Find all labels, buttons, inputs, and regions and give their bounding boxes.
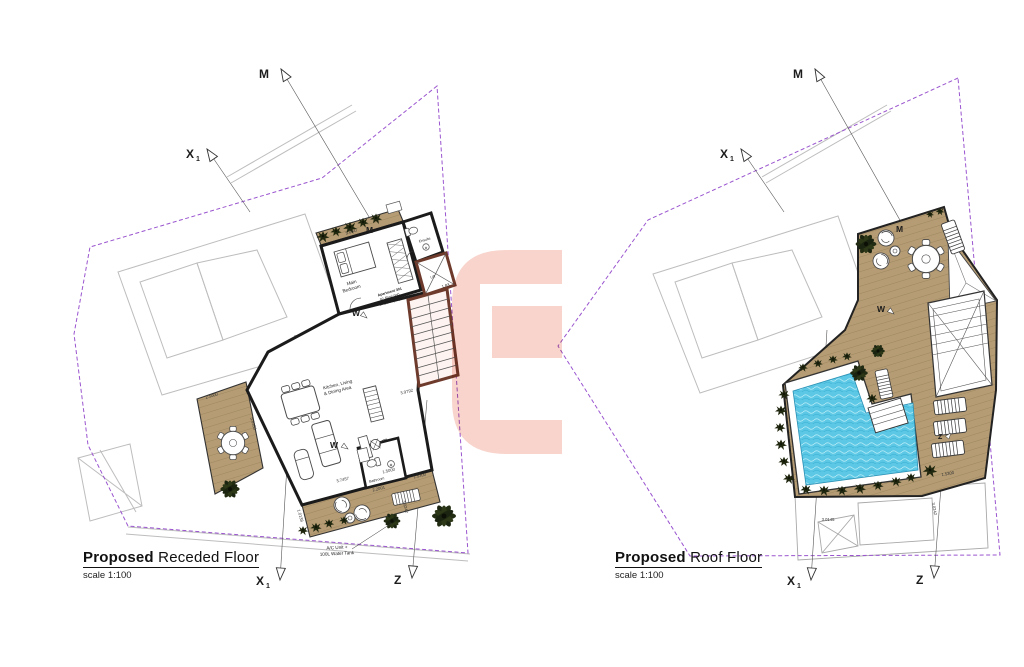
plant-icon xyxy=(778,457,789,467)
logo-watermark xyxy=(452,250,562,454)
neighbour-courtyard xyxy=(140,263,223,358)
section-arrow-icon xyxy=(276,568,286,581)
section-marker-x1: X xyxy=(186,147,194,161)
dimension-label: 3.0145 xyxy=(822,517,835,522)
section-marker-x1-sub: 1 xyxy=(266,583,270,590)
right-plan-title: Proposed Roof Floor scale 1:100 xyxy=(615,549,762,581)
section-arrow-icon xyxy=(811,67,825,82)
plan-title-rest: Roof Floor xyxy=(690,549,762,566)
neighbour-courtyard xyxy=(732,250,822,340)
section-line-m xyxy=(281,69,378,232)
section-marker-m: M xyxy=(259,67,269,81)
section-marker-z: Z xyxy=(394,573,401,587)
section-marker-m: M xyxy=(793,67,803,81)
section-marker-x1: X xyxy=(720,147,728,161)
section-marker-m-inner: M xyxy=(366,225,373,235)
section-marker-x1-sub: 1 xyxy=(730,156,734,163)
plant-icon xyxy=(775,440,787,451)
section-marker-w: W xyxy=(877,304,886,314)
neighbour-courtyard xyxy=(197,250,287,340)
drawing-sheet: Main Bedroom Ensuite Kitchen, Living & D… xyxy=(0,0,1024,667)
palm-icon xyxy=(432,504,456,529)
plan-scale: scale 1:100 xyxy=(83,570,259,581)
section-marker-z-inner: Z xyxy=(938,434,943,441)
section-marker-x1-sub: 1 xyxy=(797,583,801,590)
section-marker-w: W xyxy=(330,440,339,450)
left-plan-title: Proposed Receded Floor scale 1:100 xyxy=(83,549,259,581)
section-marker-x1: X xyxy=(787,574,795,588)
plant-icon xyxy=(774,423,785,433)
watermark-bar xyxy=(492,306,562,358)
roof-stair-shaft xyxy=(928,291,992,397)
section-arrow-icon xyxy=(807,568,817,581)
lower-roof-panel xyxy=(858,498,934,545)
plan-title-text: Proposed Roof Floor xyxy=(615,549,762,568)
plan-scale: scale 1:100 xyxy=(615,570,762,581)
section-arrow-icon xyxy=(737,146,751,161)
neighbour-party-wall xyxy=(762,105,891,183)
sink-icon xyxy=(423,244,429,250)
section-marker-x1-sub: 1 xyxy=(196,156,200,163)
neighbour-party-wall xyxy=(227,105,356,183)
section-arrow-icon xyxy=(277,67,291,82)
side-table xyxy=(890,246,900,256)
section-marker-w: W xyxy=(352,308,361,318)
neighbour-courtyard xyxy=(675,263,758,358)
section-marker-m-inner: M xyxy=(896,224,903,234)
left-site: Main Bedroom Ensuite Kitchen, Living & D… xyxy=(74,67,470,590)
plan-title-rest: Receded Floor xyxy=(158,549,259,566)
neighbour-shaft-hatch xyxy=(78,450,142,512)
right-site: 3.0145 3.0242 1.5300 M X 1 X 1 Z M W Z xyxy=(558,67,1000,590)
plan-title-bold: Proposed xyxy=(83,549,154,566)
section-arrow-icon xyxy=(408,566,418,579)
section-line-m xyxy=(815,69,910,238)
plant-icon xyxy=(298,526,308,535)
plan-title-bold: Proposed xyxy=(615,549,686,566)
ac-label: 100L Water Tank xyxy=(320,550,355,557)
section-arrow-icon xyxy=(203,146,217,161)
plan-title-text: Proposed Receded Floor xyxy=(83,549,259,568)
section-marker-z: Z xyxy=(916,573,923,587)
section-arrow-icon xyxy=(930,566,940,579)
